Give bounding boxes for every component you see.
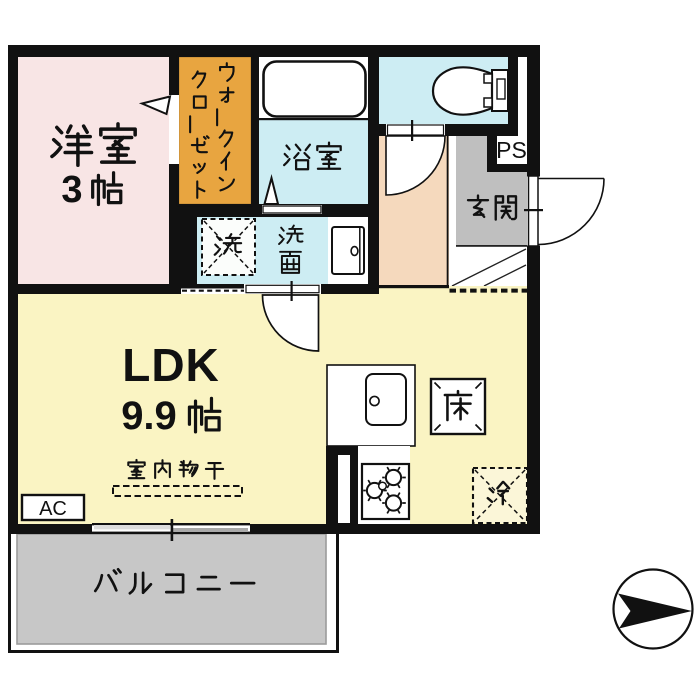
svg-text:PS: PS [496,137,527,163]
svg-text:LDK: LDK [122,339,220,391]
svg-text:AC: AC [39,498,67,520]
svg-text:9.9: 9.9 [121,394,177,438]
svg-text:3: 3 [61,169,82,211]
